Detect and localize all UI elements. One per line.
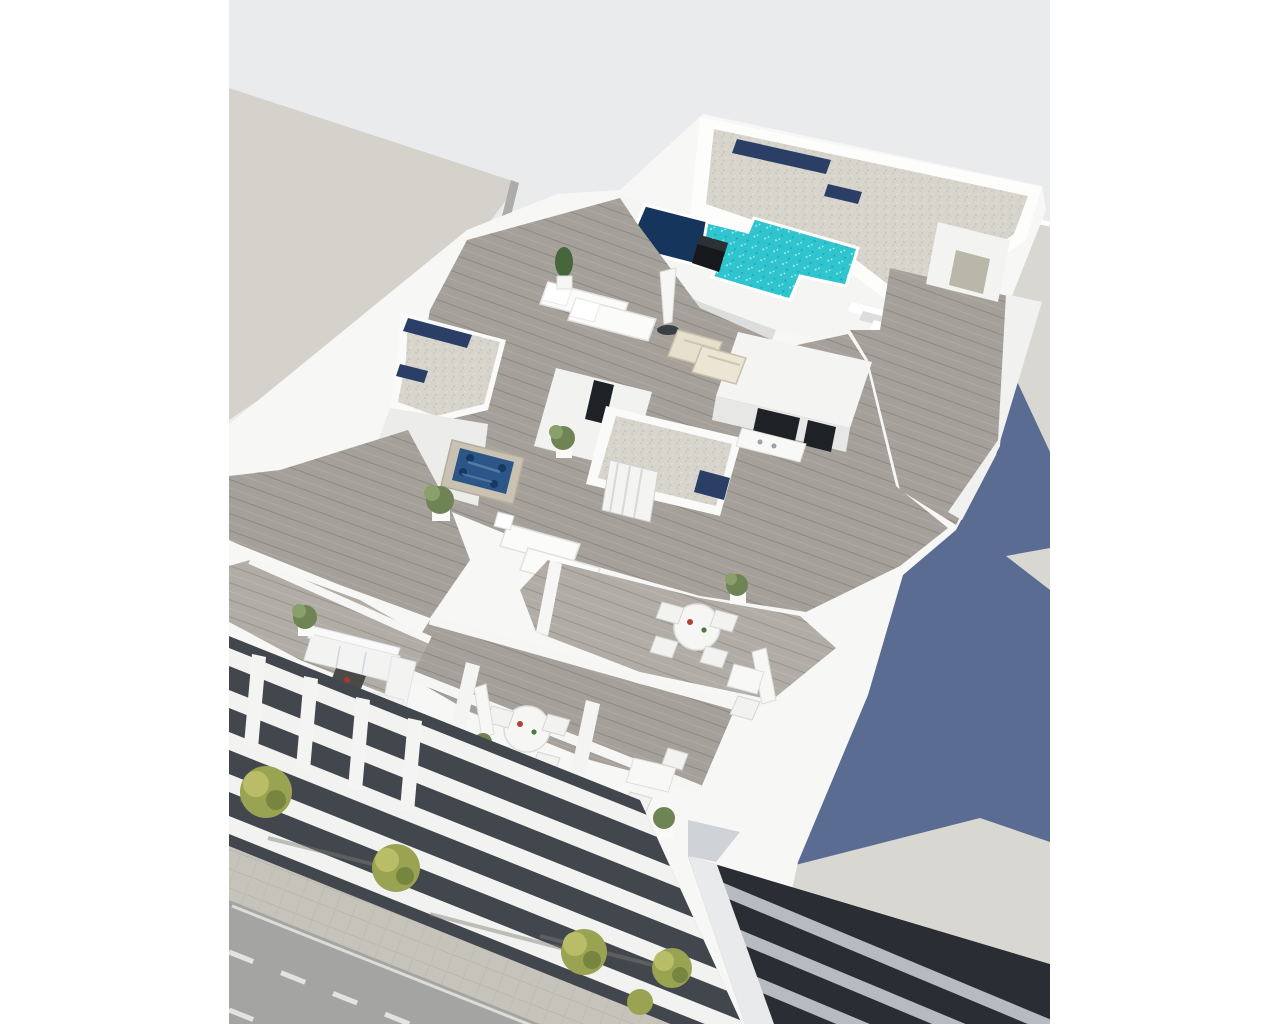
architectural-render (0, 0, 1280, 1024)
render-photo-page (0, 0, 1280, 1024)
conical-tree-planter (555, 247, 573, 289)
